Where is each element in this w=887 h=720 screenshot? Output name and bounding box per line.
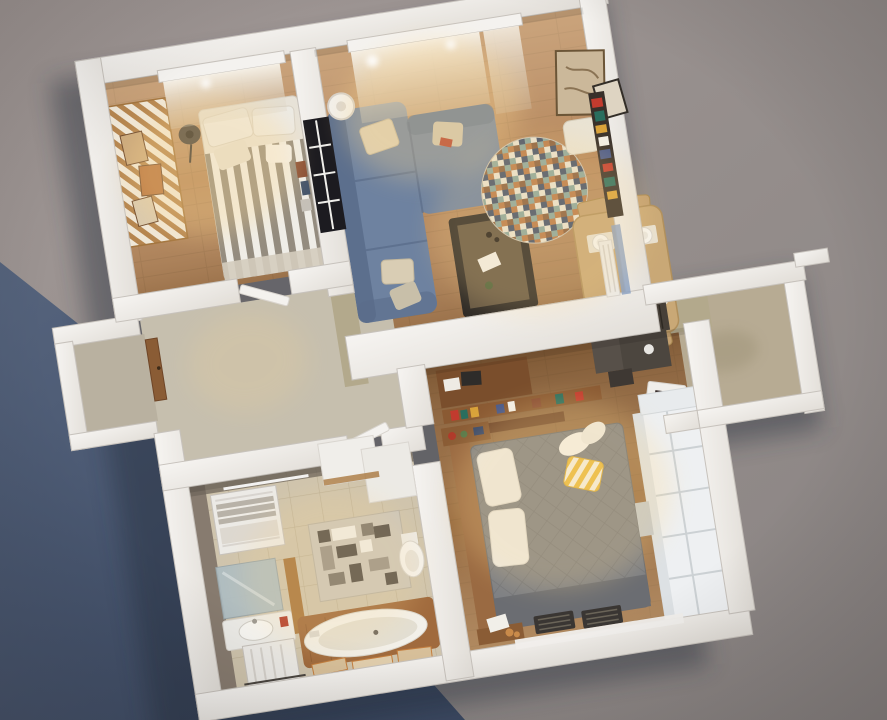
- render-canvas: [0, 0, 887, 720]
- vignette: [0, 0, 887, 720]
- floor-plan-render: [0, 0, 887, 720]
